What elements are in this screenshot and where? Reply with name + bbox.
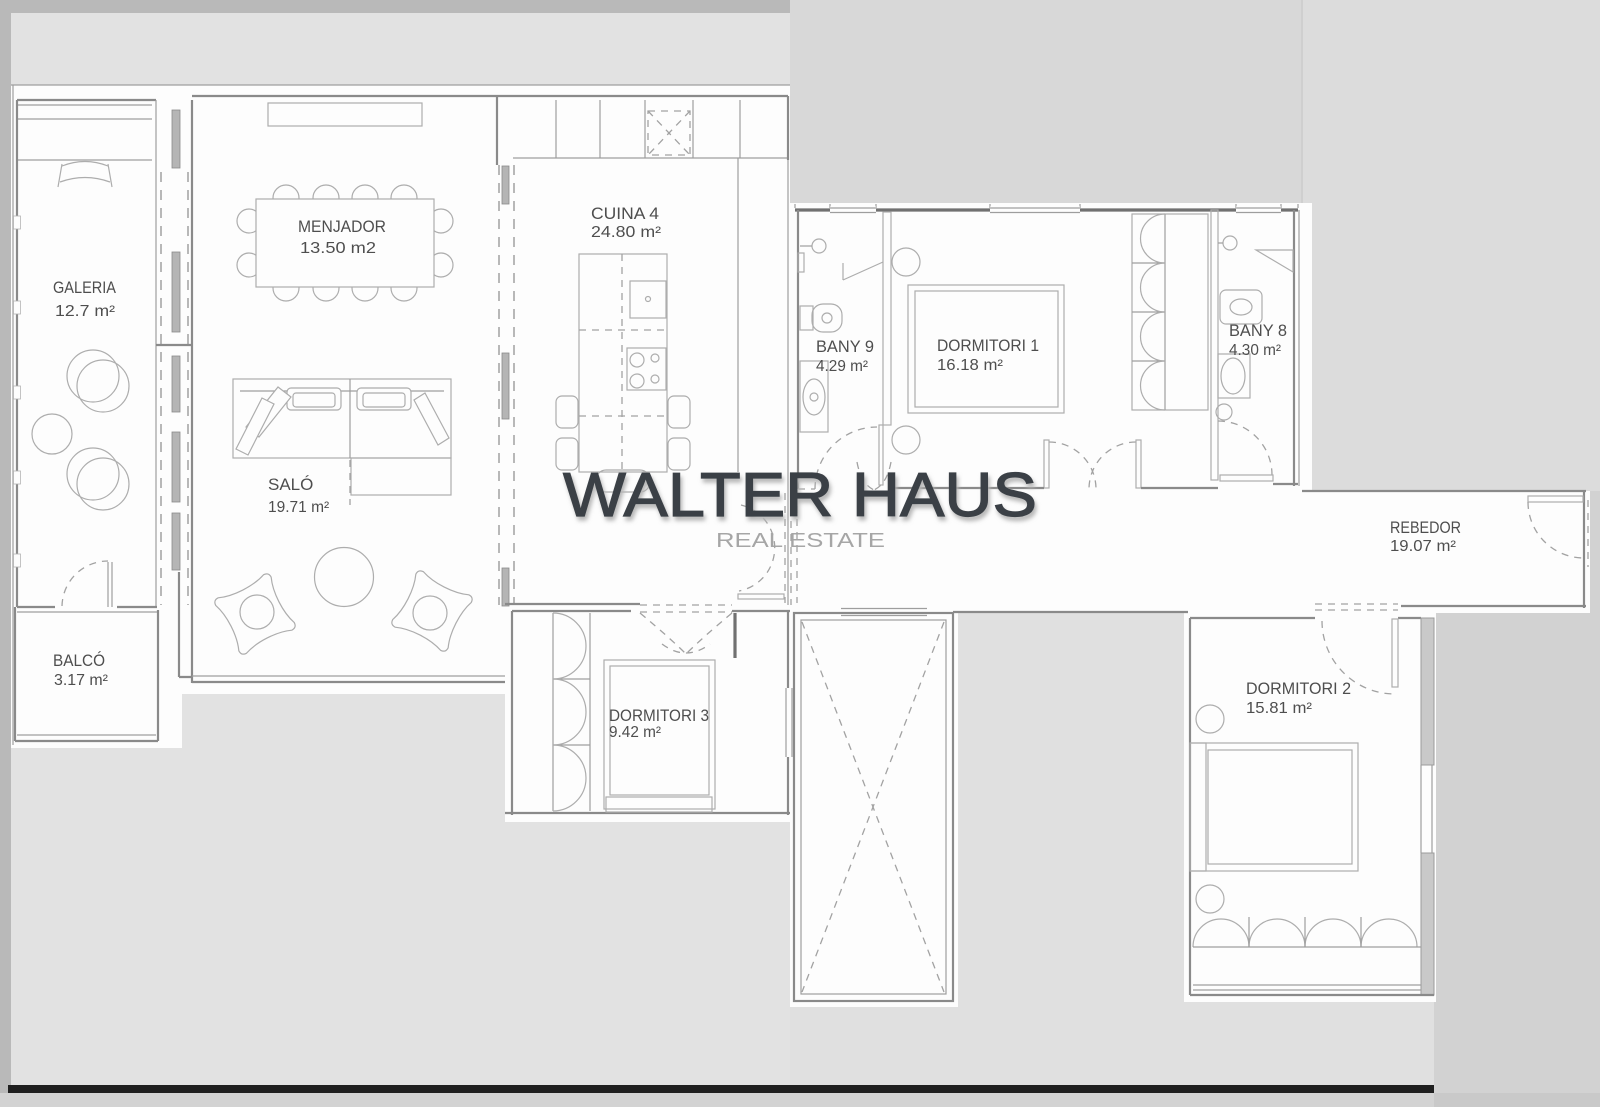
svg-text:4.30 m²: 4.30 m² [1229,342,1281,359]
svg-text:DORMITORI 2: DORMITORI 2 [1246,679,1351,698]
svg-text:12.7 m²: 12.7 m² [55,303,115,320]
svg-text:BANY 8: BANY 8 [1229,321,1287,340]
svg-text:15.81 m²: 15.81 m² [1246,700,1312,717]
svg-text:MENJADOR: MENJADOR [298,217,386,236]
svg-text:REAL ESTATE: REAL ESTATE [716,529,885,552]
svg-text:WALTER HAUS: WALTER HAUS [563,461,1037,530]
svg-text:3.17 m²: 3.17 m² [54,672,108,689]
svg-text:DORMITORI 3: DORMITORI 3 [609,706,709,725]
svg-text:BALCÓ: BALCÓ [53,651,105,670]
svg-text:SALÓ: SALÓ [268,475,313,494]
svg-text:REBEDOR: REBEDOR [1390,518,1461,537]
svg-text:19.71 m²: 19.71 m² [268,499,329,516]
svg-text:24.80 m²: 24.80 m² [591,224,661,241]
svg-text:13.50 m2: 13.50 m2 [300,240,376,257]
svg-text:16.18 m²: 16.18 m² [937,357,1003,374]
svg-text:GALERIA: GALERIA [53,278,117,297]
svg-text:DORMITORI 1: DORMITORI 1 [937,336,1039,355]
svg-text:9.42 m²: 9.42 m² [609,724,661,741]
svg-text:BANY 9: BANY 9 [816,337,874,356]
svg-text:CUINA 4: CUINA 4 [591,204,659,223]
svg-text:4.29 m²: 4.29 m² [816,358,868,375]
svg-text:19.07 m²: 19.07 m² [1390,538,1456,555]
